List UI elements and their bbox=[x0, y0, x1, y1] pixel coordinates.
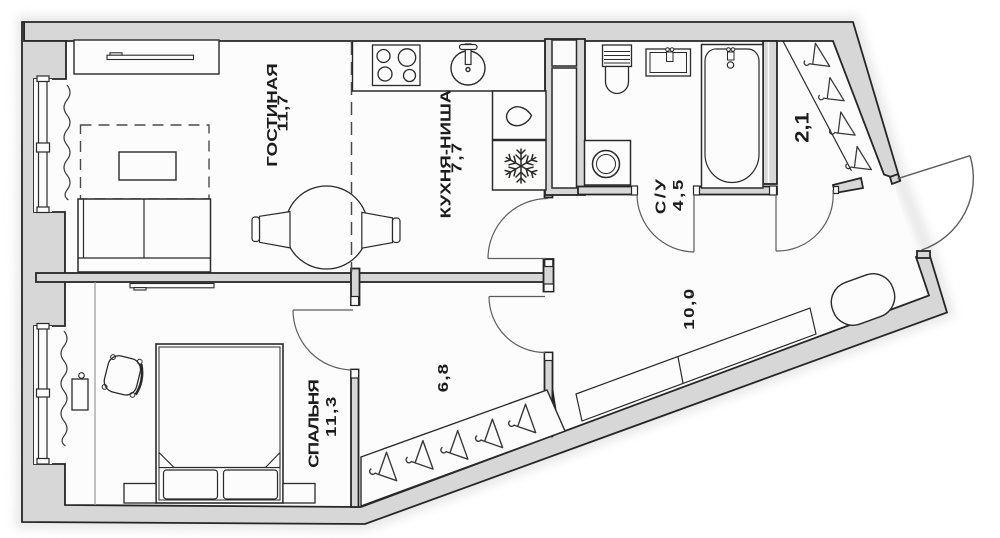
svg-text:2,1: 2,1 bbox=[792, 112, 813, 142]
svg-text:11,7: 11,7 bbox=[274, 95, 291, 132]
svg-text:6,8: 6,8 bbox=[435, 363, 452, 392]
svg-text:10,0: 10,0 bbox=[681, 287, 698, 329]
svg-text:С/У: С/У bbox=[652, 177, 669, 214]
svg-text:СПАЛЬНЯ: СПАЛЬНЯ bbox=[305, 379, 322, 468]
svg-text:7,7: 7,7 bbox=[448, 141, 465, 173]
svg-text:4,5: 4,5 bbox=[670, 177, 687, 211]
svg-text:11,3: 11,3 bbox=[323, 395, 340, 437]
